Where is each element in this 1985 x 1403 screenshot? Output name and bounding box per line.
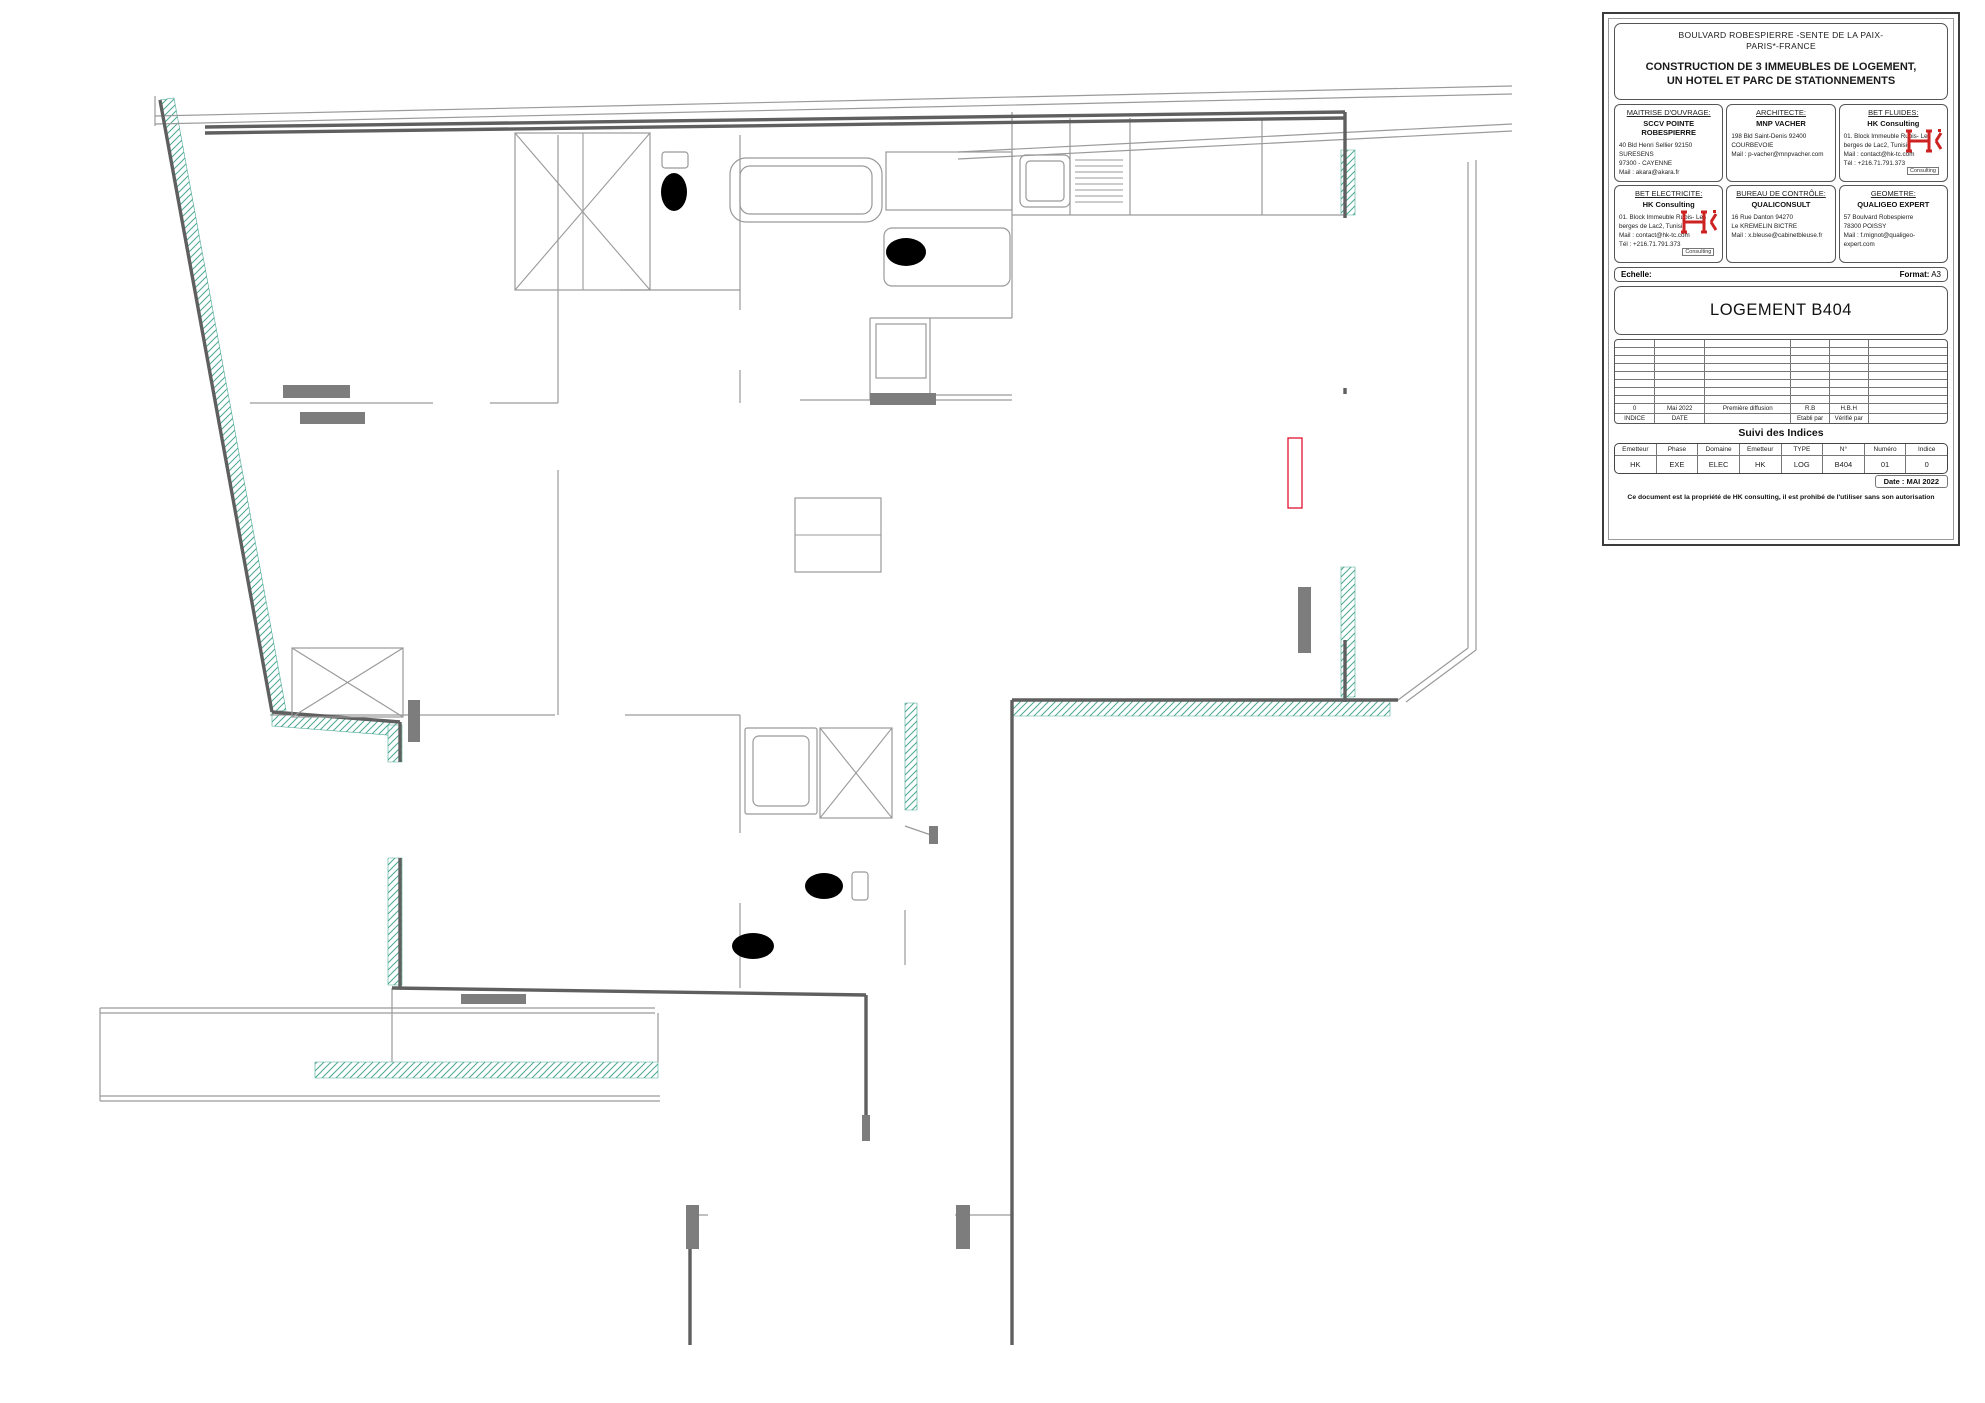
revision-cell — [1790, 340, 1829, 347]
revision-row — [1615, 347, 1947, 355]
stakeholder-address-line: 16 Rue Danton 94270 — [1731, 213, 1830, 222]
revision-cell — [1654, 356, 1704, 363]
revision-cell — [1868, 404, 1947, 413]
furniture-bar — [870, 393, 936, 405]
stakeholder-box-5: GEOMETRE:QUALIGEO EXPERT57 Boulvard Robe… — [1839, 185, 1948, 263]
sanitary-fixture — [732, 933, 774, 959]
wall-line — [1406, 650, 1476, 702]
revision-cell — [1868, 340, 1947, 347]
revision-cell — [1868, 348, 1947, 355]
furniture-bar — [300, 412, 365, 424]
furniture-bar — [461, 994, 526, 1004]
wall-line — [1398, 648, 1468, 700]
revision-cell — [1829, 356, 1868, 363]
suivi-cell: B404 — [1822, 456, 1864, 473]
suivi-cell: HK — [1739, 456, 1781, 473]
revision-cell — [1829, 388, 1868, 395]
revision-cell — [1704, 356, 1790, 363]
fixture — [753, 736, 809, 806]
revision-cell — [1790, 380, 1829, 387]
wall-thick — [392, 988, 866, 995]
suivi-cell: Numéro — [1864, 444, 1906, 455]
stakeholder-role: GEOMETRE: — [1844, 189, 1943, 198]
suivi-cell: ELEC — [1697, 456, 1739, 473]
title-block-inner: BOULVARD ROBESPIERRE -SENTE DE LA PAIX- … — [1608, 18, 1954, 540]
stakeholder-address-line: Le KREMELIN BICTRE — [1731, 222, 1830, 231]
stakeholder-address-line: 40 Bld Henri Sellier 92150 SURESENS — [1619, 141, 1718, 159]
insulation-band — [1341, 150, 1355, 215]
revision-row — [1615, 379, 1947, 387]
drawing-title: LOGEMENT B404 — [1614, 286, 1948, 335]
revision-cell — [1615, 364, 1654, 371]
drawing-canvas: BOULVARD ROBESPIERRE -SENTE DE LA PAIX- … — [0, 0, 1985, 1403]
scale-format-bar: Echelle: Format: A3 — [1614, 267, 1948, 282]
stakeholder-role: BUREAU DE CONTRÔLE: — [1731, 189, 1830, 198]
revision-cell — [1868, 364, 1947, 371]
stakeholder-role: ARCHITECTE: — [1731, 108, 1830, 117]
revision-row — [1615, 340, 1947, 347]
stakeholder-name: HK Consulting — [1619, 200, 1718, 209]
furniture-bar — [862, 1115, 870, 1141]
furniture-bar — [956, 1205, 970, 1249]
revision-cell — [1704, 364, 1790, 371]
revision-row — [1615, 387, 1947, 395]
furniture-bar — [1298, 587, 1311, 653]
revision-cell — [1829, 380, 1868, 387]
sanitary-fixture — [805, 873, 843, 899]
stakeholder-name: QUALICONSULT — [1731, 200, 1830, 209]
insulation-band — [160, 98, 286, 712]
stakeholder-name: SCCV POINTE ROBESPIERRE — [1619, 119, 1718, 137]
revision-cell — [1615, 380, 1654, 387]
suivi-cell: Indice — [1905, 444, 1947, 455]
project-title-line2: UN HOTEL ET PARC DE STATIONNEMENTS — [1619, 74, 1943, 88]
stakeholder-role: MAITRISE D'OUVRAGE: — [1619, 108, 1718, 117]
stakeholder-address-line: Mail : p-vacher@mnpvacher.com — [1731, 150, 1830, 159]
revision-cell: 0 — [1615, 404, 1654, 413]
wall-line — [905, 826, 931, 835]
stakeholder-box-3: BET ELECTRICITE:HK Consulting01. Block I… — [1614, 185, 1723, 263]
stakeholder-box-2: BET FLUIDES:HK Consulting01. Block Immeu… — [1839, 104, 1948, 182]
suivi-cell: N° — [1822, 444, 1864, 455]
revision-cell: INDICE — [1615, 414, 1654, 423]
fixture — [876, 324, 926, 378]
insulation-band — [1341, 567, 1355, 697]
revision-row: INDICEDATEEtabli parVérifié par — [1615, 413, 1947, 423]
revision-cell — [1615, 348, 1654, 355]
insulation-band — [905, 703, 917, 810]
revision-cell — [1829, 372, 1868, 379]
revision-row — [1615, 363, 1947, 371]
fixture — [730, 158, 882, 222]
date-value: Date : MAI 2022 — [1875, 475, 1948, 488]
revision-cell — [1615, 340, 1654, 347]
stakeholder-box-4: BUREAU DE CONTRÔLE:QUALICONSULT16 Rue Da… — [1726, 185, 1835, 263]
fixture — [745, 728, 817, 814]
revision-cell — [1790, 388, 1829, 395]
revision-cell — [1704, 396, 1790, 403]
stakeholder-name: HK Consulting — [1844, 119, 1943, 128]
revision-cell — [1868, 356, 1947, 363]
revision-row: 0Mai 2022Première diffusionR.BH.B.H — [1615, 403, 1947, 413]
furniture-bar — [929, 826, 938, 844]
revision-cell — [1868, 396, 1947, 403]
suivi-cell: EXE — [1656, 456, 1698, 473]
project-address-line2: PARIS*-FRANCE — [1619, 41, 1943, 52]
revision-cell: R.B — [1790, 404, 1829, 413]
suivi-cell: 01 — [1864, 456, 1906, 473]
revision-row — [1615, 395, 1947, 403]
hk-consulting-logo-icon: Consulting — [1901, 128, 1945, 177]
revision-cell — [1790, 372, 1829, 379]
stakeholder-box-1: ARCHITECTE:MNP VACHER198 Bld Saint-Denis… — [1726, 104, 1835, 182]
revision-cell — [1654, 340, 1704, 347]
revision-cell — [1615, 356, 1654, 363]
fixture — [1026, 161, 1064, 201]
revision-cell — [1829, 348, 1868, 355]
wall-thick — [160, 100, 272, 712]
revision-cell — [1615, 372, 1654, 379]
stakeholder-name: QUALIGEO EXPERT — [1844, 200, 1943, 209]
stakeholder-address-line: Mail : f.mignot@qualigeo-expert.com — [1844, 231, 1943, 249]
stakeholder-name: MNP VACHER — [1731, 119, 1830, 128]
revision-cell — [1790, 364, 1829, 371]
revision-cell — [1868, 372, 1947, 379]
wall-line — [958, 124, 1512, 152]
revision-cell — [1704, 372, 1790, 379]
suivi-values-row: HKEXEELECHKLOGB404010 — [1615, 455, 1947, 473]
title-block: BOULVARD ROBESPIERRE -SENTE DE LA PAIX- … — [1602, 12, 1960, 546]
suivi-cell: HK — [1615, 456, 1656, 473]
stakeholder-address-line: 57 Boulvard Robespierre — [1844, 213, 1943, 222]
revision-cell — [1704, 340, 1790, 347]
stakeholder-address-line: 97300 - CAYENNE — [1619, 159, 1718, 168]
revision-cell — [1868, 388, 1947, 395]
revision-cell — [1654, 388, 1704, 395]
insulation-band — [1012, 700, 1390, 716]
suivi-header-row: EmetteurPhaseDomaineEmetteurTYPEN°Numéro… — [1615, 444, 1947, 455]
stakeholder-role: BET ELECTRICITE: — [1619, 189, 1718, 198]
revision-row — [1615, 355, 1947, 363]
revision-cell — [1704, 380, 1790, 387]
revision-cell — [1615, 388, 1654, 395]
suivi-cell: Emetteur — [1739, 444, 1781, 455]
format-field: Format: A3 — [1900, 270, 1941, 279]
revision-cell — [1704, 388, 1790, 395]
revision-cell — [1654, 380, 1704, 387]
ownership-footer: Ce document est la propriété de HK consu… — [1614, 494, 1948, 501]
stakeholder-address-line: 198 Bld Saint-Denis 92400 — [1731, 132, 1830, 141]
revision-cell: Vérifié par — [1829, 414, 1868, 423]
project-header: BOULVARD ROBESPIERRE -SENTE DE LA PAIX- … — [1614, 23, 1948, 100]
date-row: Date : MAI 2022 — [1614, 474, 1948, 488]
fixture — [886, 152, 1012, 210]
revision-cell: DATE — [1654, 414, 1704, 423]
revision-cell — [1829, 364, 1868, 371]
suivi-cell: 0 — [1905, 456, 1947, 473]
stakeholder-grid: MAITRISE D'OUVRAGE:SCCV POINTE ROBESPIER… — [1614, 104, 1948, 263]
revision-cell: H.B.H — [1829, 404, 1868, 413]
revision-cell — [1829, 396, 1868, 403]
revision-cell — [1790, 356, 1829, 363]
revision-cell — [1790, 396, 1829, 403]
revision-cell: Mai 2022 — [1654, 404, 1704, 413]
fixture — [852, 872, 868, 900]
revision-cell — [1829, 340, 1868, 347]
fixture — [740, 166, 872, 214]
furniture-bar — [408, 700, 420, 742]
hk-consulting-logo-icon: Consulting — [1676, 209, 1720, 258]
furniture-bar — [283, 385, 350, 398]
suivi-title: Suivi des Indices — [1614, 424, 1948, 442]
stakeholder-role: BET FLUIDES: — [1844, 108, 1943, 117]
sanitary-fixture — [886, 238, 926, 266]
stakeholder-box-0: MAITRISE D'OUVRAGE:SCCV POINTE ROBESPIER… — [1614, 104, 1723, 182]
stakeholder-address-line: Mail : akara@akara.fr — [1619, 168, 1718, 177]
revision-row — [1615, 371, 1947, 379]
furniture-bar — [686, 1205, 699, 1249]
fixture — [1020, 155, 1070, 207]
suivi-table: EmetteurPhaseDomaineEmetteurTYPEN°Numéro… — [1614, 443, 1948, 474]
sanitary-fixture — [661, 173, 687, 211]
revision-table: 0Mai 2022Première diffusionR.BH.B.HINDIC… — [1614, 339, 1948, 424]
revision-cell — [1790, 348, 1829, 355]
suivi-cell: Domaine — [1697, 444, 1739, 455]
insulation-band — [315, 1062, 658, 1078]
echelle-label: Echelle: — [1621, 270, 1652, 279]
project-address-line1: BOULVARD ROBESPIERRE -SENTE DE LA PAIX- — [1619, 30, 1943, 41]
stakeholder-address-line: Mail : x.bleuse@cabinetbleuse.fr — [1731, 231, 1830, 240]
fixture — [662, 152, 688, 168]
suivi-cell: LOG — [1781, 456, 1823, 473]
stakeholder-address-line: 78300 POISSY — [1844, 222, 1943, 231]
revision-cell — [1868, 414, 1947, 423]
revision-cell — [1704, 414, 1790, 423]
stakeholder-address-line: COURBEVOIE — [1731, 141, 1830, 150]
revision-cell — [1654, 348, 1704, 355]
suivi-cell: Emetteur — [1615, 444, 1656, 455]
revision-cell: Etabli par — [1790, 414, 1829, 423]
revision-cell — [1868, 380, 1947, 387]
revision-cell — [1654, 364, 1704, 371]
revision-cell — [1654, 396, 1704, 403]
revision-cell — [1704, 348, 1790, 355]
revision-cell — [1615, 396, 1654, 403]
revision-cell — [1654, 372, 1704, 379]
fixture — [1288, 438, 1302, 508]
suivi-cell: TYPE — [1781, 444, 1823, 455]
project-title-line1: CONSTRUCTION DE 3 IMMEUBLES DE LOGEMENT, — [1619, 60, 1943, 74]
suivi-cell: Phase — [1656, 444, 1698, 455]
revision-cell: Première diffusion — [1704, 404, 1790, 413]
